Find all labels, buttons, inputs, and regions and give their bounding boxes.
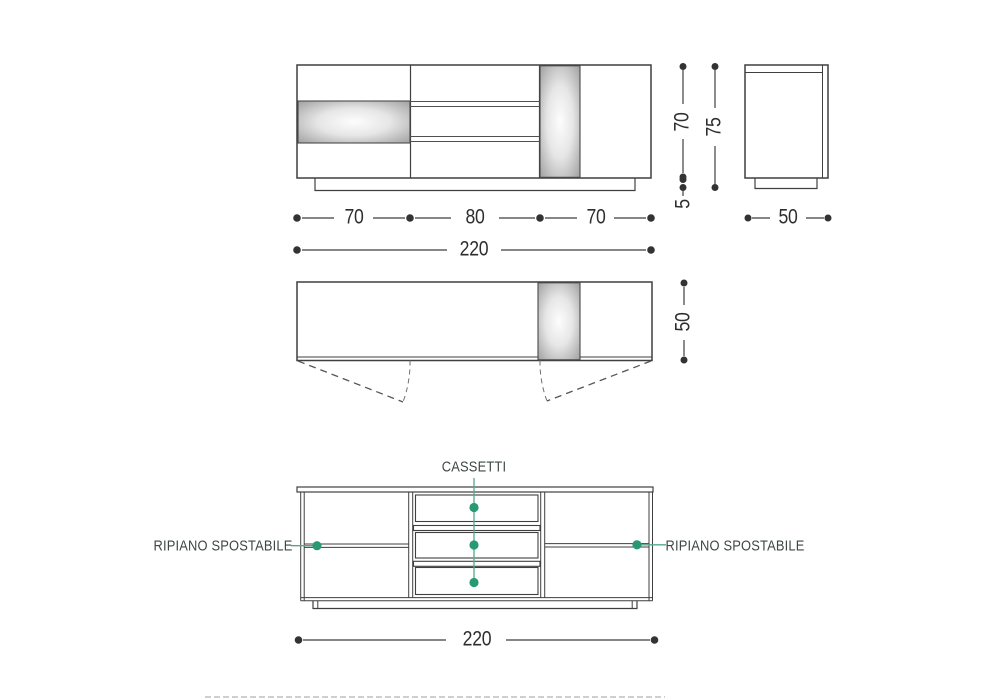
dim-side-body-height: 70 xyxy=(672,112,693,131)
drawer-1-marker-dot xyxy=(469,503,478,512)
dim-front-right-width: 70 xyxy=(586,207,605,228)
dim-front-left-width: 70 xyxy=(344,207,363,228)
dim-side-plinth-height: 5 xyxy=(673,199,694,209)
drawer-3-marker-dot xyxy=(469,578,478,587)
front-view xyxy=(297,65,651,191)
dim-internal-total-width: 220 xyxy=(463,629,492,650)
front-drawer-lines xyxy=(411,102,540,142)
plan-open-doors xyxy=(298,361,651,403)
front-left-glass-band xyxy=(298,101,410,143)
side-plinth xyxy=(755,178,817,189)
dim-side-total-height: 75 xyxy=(704,117,725,136)
plan-glass-band xyxy=(538,283,580,360)
drawer-rail-2 xyxy=(414,561,541,566)
drawer-rail-1 xyxy=(414,526,541,531)
annotation-left-shelf: RIPIANO SPOSTABILE xyxy=(153,538,292,553)
right-door-open-line xyxy=(547,361,651,401)
front-right-glass-band xyxy=(540,66,580,178)
internal-plinth xyxy=(313,601,637,609)
dim-front-total-width: 220 xyxy=(460,239,489,260)
side-dimensions xyxy=(680,63,832,222)
left-door-swing-arc xyxy=(403,361,410,403)
left-door-open-line xyxy=(298,361,403,402)
technical-drawing-sideboard: 70 80 70 220 70 75 5 50 50 CASSETTI RIPI… xyxy=(0,0,1000,700)
left-shelf-marker-dot xyxy=(312,541,321,550)
dim-plan-depth: 50 xyxy=(673,312,694,331)
internal-top-panel xyxy=(297,487,653,492)
annotation-drawers: CASSETTI xyxy=(442,460,506,475)
dim-side-depth: 50 xyxy=(778,207,797,228)
right-shelf-marker-dot xyxy=(632,540,641,549)
drawer-2-marker-dot xyxy=(469,540,478,549)
side-view xyxy=(745,65,828,189)
front-plinth xyxy=(315,178,635,191)
drawing-canvas xyxy=(0,0,1000,700)
dim-front-center-width: 80 xyxy=(465,207,484,228)
side-cabinet-outline xyxy=(745,65,828,178)
right-door-swing-arc xyxy=(540,361,547,402)
plan-cabinet-outline xyxy=(297,282,652,361)
plan-view xyxy=(297,282,652,402)
annotation-right-shelf: RIPIANO SPOSTABILE xyxy=(665,538,804,553)
